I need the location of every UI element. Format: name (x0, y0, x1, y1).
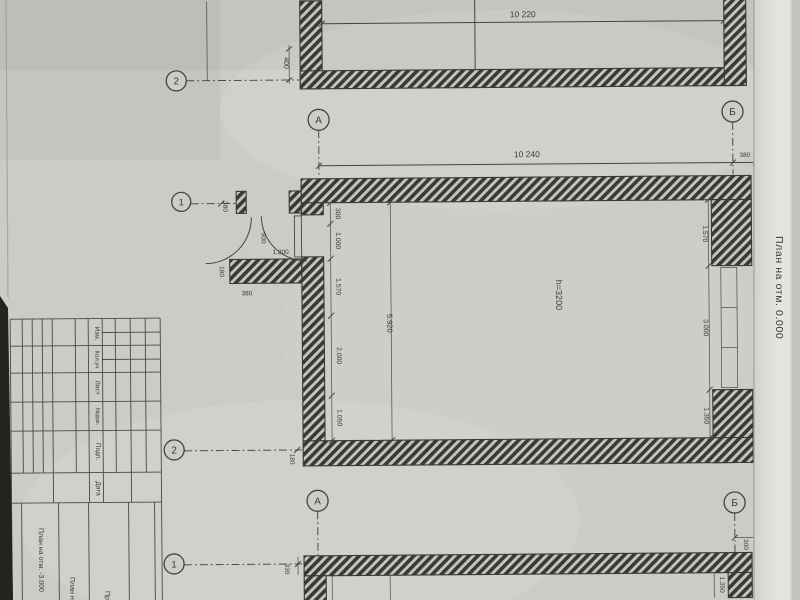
wall-left (302, 257, 325, 441)
chain-dim: 1.570 (701, 225, 708, 242)
title-block-header: Подп. (94, 443, 101, 461)
dim-label: 400 (282, 57, 289, 69)
wall-bottom (303, 437, 753, 466)
wall-top (301, 175, 751, 203)
title-block-header: Изм. (93, 327, 100, 341)
dim-interior-width-label: 10 220 (510, 9, 536, 19)
vestibule-wall-stub-left (236, 191, 246, 213)
wall-segment (300, 67, 746, 89)
axis-b-label: Б (729, 107, 736, 118)
dim-label: 180 (288, 454, 295, 465)
room-depth-label: 5.920 (385, 314, 394, 333)
wall-right-stub (728, 572, 752, 597)
title-block-header: Кол.уч (93, 351, 99, 369)
wall-right-upper (711, 199, 752, 265)
dim-label: 330 (283, 564, 290, 575)
axis-label: 2 (173, 76, 179, 87)
dim-label: 380 (221, 201, 228, 212)
edge-outer (792, 0, 800, 600)
door-leaf (294, 216, 301, 257)
axis-label: 1 (179, 197, 184, 208)
title-block-entry: Пр (103, 591, 110, 600)
dim-label: 380 (241, 290, 252, 297)
partition-line (475, 0, 476, 70)
axis-1-label: 1 (171, 559, 176, 570)
vestibule-wall-bottom (230, 259, 302, 284)
axis-a-label: А (314, 496, 321, 507)
axis-b-label: Б (731, 498, 738, 509)
chain-dim: 1.570 (334, 278, 341, 295)
title-block-entry: План на от (68, 577, 75, 600)
chain-dim: 2.000 (335, 347, 342, 364)
title-block-entry: План на отм. -3.000 (37, 528, 45, 592)
chain-dim: 3.000 (702, 319, 709, 336)
dim-label: 900 (259, 233, 266, 244)
drawing-canvas: 10 220 2 400 А Б (0, 0, 800, 600)
vestibule-wall-stub-right (289, 191, 301, 213)
title-block-header: Дата (94, 481, 101, 496)
wall-top (304, 552, 752, 576)
title-block-header: №док. (94, 408, 101, 426)
wall-segment (724, 0, 747, 86)
dim-label: 1.350 (718, 576, 725, 593)
sheet-side-label: План на отм. 0.000 (773, 236, 785, 339)
paper-background (0, 0, 800, 600)
chain-dim: 1.350 (702, 407, 709, 424)
chain-dim: 1.000 (334, 232, 341, 249)
room-height-label: h=3200 (554, 280, 564, 310)
chain-dim: 300 (334, 208, 341, 220)
dim-total-label: 10 240 (514, 149, 540, 159)
axis-a-label: А (315, 115, 322, 126)
wall-left-stub (301, 203, 323, 215)
sheet-right-edge: План на отм. 0.000 (754, 0, 800, 600)
dim-label: 300 (742, 539, 749, 550)
dim-label: 180 (218, 266, 225, 277)
dim-offset-label: 380 (739, 152, 750, 159)
floor-plan-photo: 10 220 2 400 А Б (0, 0, 800, 600)
axis-label: 2 (171, 445, 177, 456)
dim-label: 1.200 (272, 249, 289, 256)
chain-dim: 1.050 (335, 409, 342, 426)
title-block-header: Лист (94, 380, 101, 394)
wall-left-stub (304, 576, 326, 600)
